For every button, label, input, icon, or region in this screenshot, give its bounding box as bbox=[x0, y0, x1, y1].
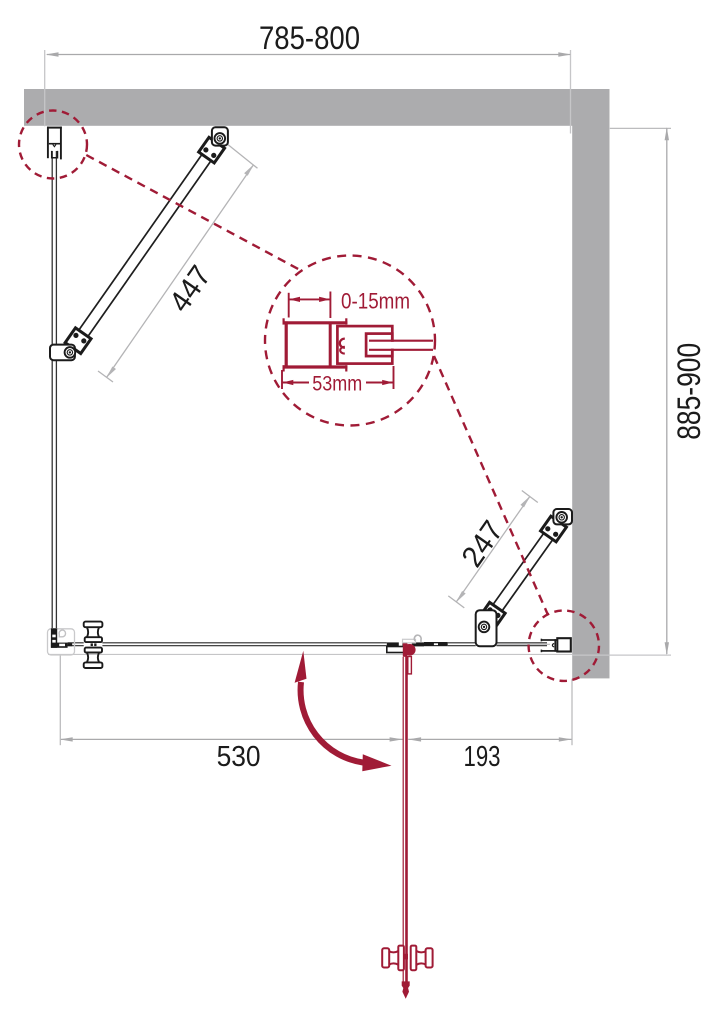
svg-text:193: 193 bbox=[464, 741, 501, 773]
svg-text:785-800: 785-800 bbox=[259, 20, 360, 56]
svg-text:53mm: 53mm bbox=[312, 373, 362, 396]
svg-text:530: 530 bbox=[217, 741, 261, 773]
svg-text:885-900: 885-900 bbox=[671, 343, 707, 440]
svg-text:0-15mm: 0-15mm bbox=[341, 289, 410, 314]
